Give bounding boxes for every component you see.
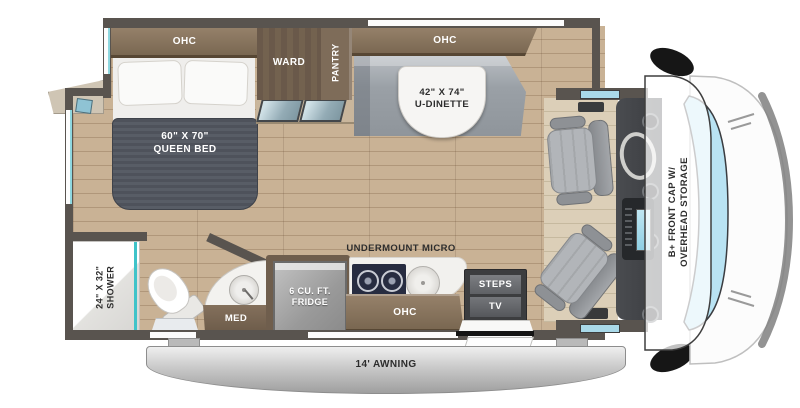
bedroom-ohc-label: OHC [173,36,196,49]
toilet-bowl-inner [149,271,182,305]
steps-label: STEPS [479,279,512,291]
kitchen-sink-drain [421,281,425,285]
kitchen-overhead-cabinet: OHC [346,294,464,332]
rv-floorplan: OHC 60" X 70" QUEEN BED WARD PANTRY OHC … [0,0,800,408]
micro-label: UNDERMOUNT MICRO [346,243,455,255]
undermount-micro: UNDERMOUNT MICRO [336,243,466,255]
pillow-left [117,60,182,106]
fridge-top-edge [275,263,345,270]
vanity-sink [229,275,259,305]
glass-panel-right [299,99,347,122]
burner-left [357,270,379,292]
dinette-bench-highlight [354,56,526,66]
front-cap-label: B+ FRONT CAP W/ OVERHEAD STORAGE [658,105,700,319]
shower-size-label: 24" X 32" [94,265,105,308]
bath-wall-top [65,232,147,241]
medicine-cabinet: MED [203,305,269,332]
dinette-bench-left-arm [354,56,370,136]
nightstand-decor [75,98,93,114]
dinette-name-label: U-DINETTE [415,99,469,111]
slide-window [104,28,110,74]
pillow-right [183,60,248,106]
dinette-overhead-cabinet: OHC [352,26,538,56]
pantry-label: PANTRY [331,44,342,82]
front-cap-line1: B+ FRONT CAP W/ [667,167,679,258]
tv-label: TV [489,301,502,313]
entry-door-threshold [456,331,534,336]
cooktop [352,264,406,296]
glass-panel-left [256,99,304,122]
dinette-size-label: 42" X 74" [419,87,464,99]
shower-name-label: SHOWER [105,265,116,308]
med-label: MED [225,313,247,325]
awning: 14' AWNING [146,346,626,394]
rear-window [66,110,72,204]
dinette-ohc-label: OHC [433,35,456,48]
front-cap-line2: OVERHEAD STORAGE [679,157,691,267]
fridge: 6 CU. FT. FRIDGE [273,261,347,333]
bed-name-label: QUEEN BED [153,144,216,157]
top-window [368,20,564,26]
pantry: PANTRY [321,26,352,100]
vanity-faucet [244,289,253,299]
steps-panel: STEPS [470,275,521,294]
fridge-size-label: 6 CU. FT. [289,286,331,297]
awning-label: 14' AWNING [355,359,416,372]
steps-tv-unit: STEPS TV [464,269,527,323]
fridge-name-label: FRIDGE [292,297,328,308]
bed-size-label: 60" X 70" [161,131,209,144]
kitchen-ohc-label: OHC [393,307,416,320]
ward-label: WARD [273,57,305,70]
burner-right [381,270,403,292]
shower: 24" X 32" SHOWER [71,241,140,333]
queen-bed-mattress: 60" X 70" QUEEN BED [112,118,258,210]
bottom-window-kitchen [308,332,458,338]
tv-panel: TV [470,297,521,317]
wardrobe: WARD [257,26,321,100]
bedroom-overhead-cabinet: OHC [111,26,258,58]
